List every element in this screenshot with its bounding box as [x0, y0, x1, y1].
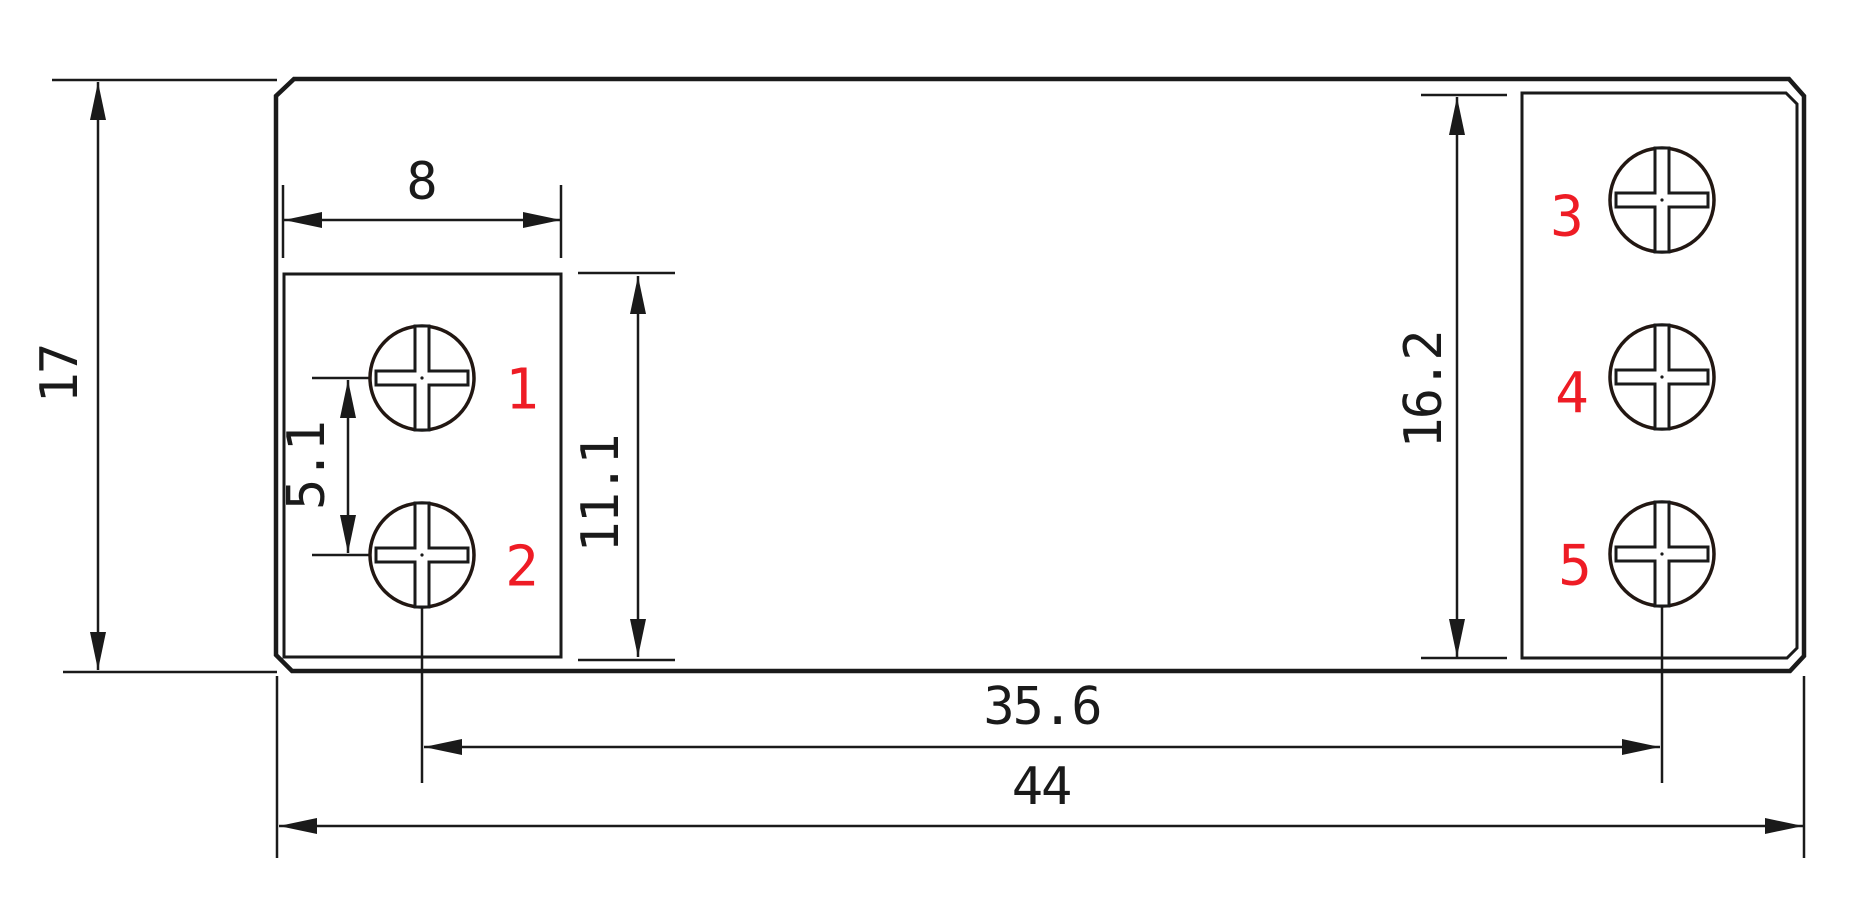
- terminal-number-1: 1: [505, 358, 539, 423]
- terminal-number-5: 5: [1558, 534, 1592, 599]
- terminal-number-4: 4: [1555, 362, 1589, 427]
- terminal-number-2: 2: [505, 535, 539, 600]
- screw-center-dot: [1660, 552, 1663, 555]
- arrowhead-right: [1765, 818, 1803, 834]
- screw-center-dot: [1660, 375, 1663, 378]
- screw-center-dot: [1660, 198, 1663, 201]
- dimension-drawing: 17 8 5.1 11.1 16.2 35.6: [0, 0, 1866, 901]
- dim-label-screw-span: 35.6: [983, 677, 1100, 737]
- arrowhead-up: [90, 82, 106, 120]
- screw-center-dot: [420, 376, 423, 379]
- dim-label-slot-width: 8: [406, 152, 435, 212]
- dim-label-left-slot-height: 11.1: [571, 435, 631, 552]
- dim-label-overall-height: 17: [30, 345, 90, 404]
- screw-center-dot: [420, 553, 423, 556]
- screw-terminal-3: [1610, 148, 1714, 252]
- dim-overall-height: 17: [30, 80, 277, 672]
- dim-screw-span: 35.6: [424, 677, 1660, 755]
- drawing-canvas: 17 8 5.1 11.1 16.2 35.6: [0, 0, 1866, 901]
- dim-label-screw-pitch: 5.1: [277, 422, 337, 510]
- screw-terminal-4: [1610, 325, 1714, 429]
- arrowhead-down: [90, 632, 106, 670]
- arrowhead-right: [1622, 739, 1660, 755]
- arrowhead-left: [279, 818, 317, 834]
- dim-label-overall-width: 44: [1012, 757, 1071, 817]
- dim-label-right-slot-height: 16.2: [1394, 331, 1454, 448]
- screw-terminal-1: [370, 326, 474, 430]
- terminal-number-3: 3: [1550, 185, 1584, 250]
- arrowhead-left: [424, 739, 462, 755]
- screw-terminal-5: [1610, 502, 1714, 606]
- screw-terminal-2: [370, 503, 474, 607]
